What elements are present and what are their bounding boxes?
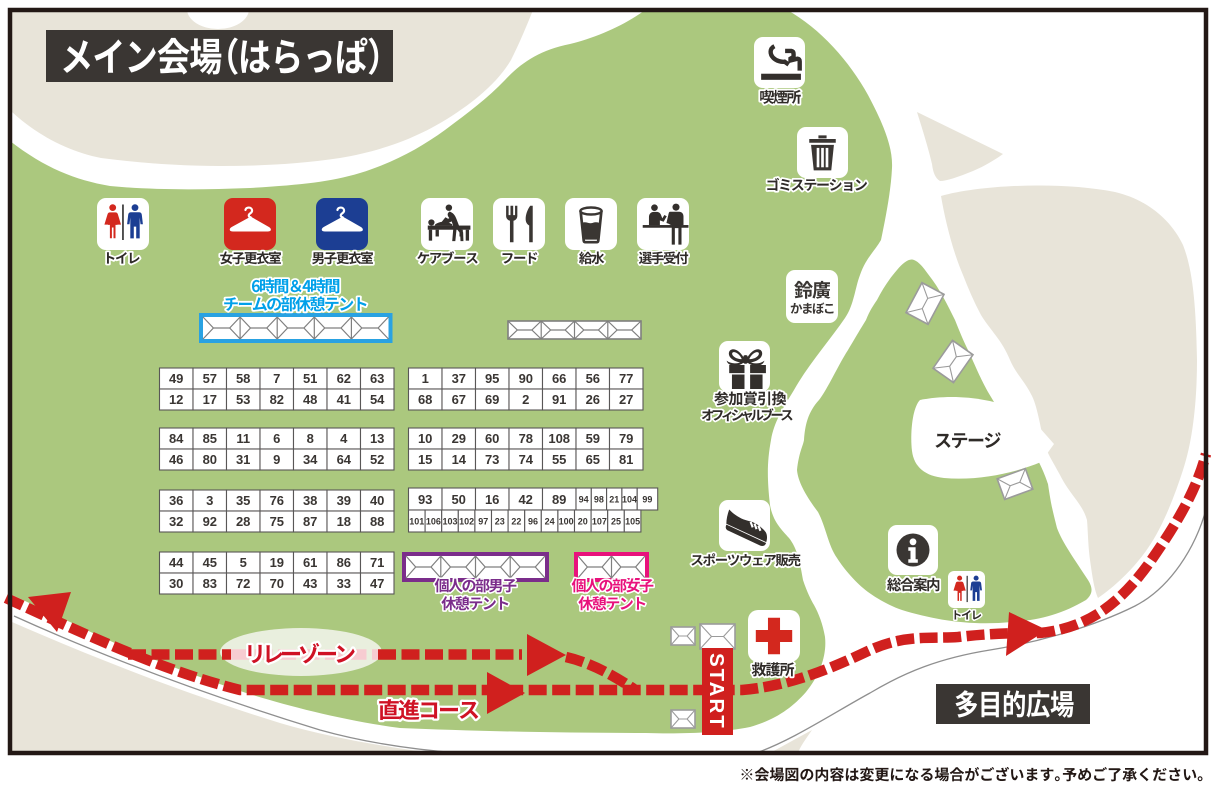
svg-text:64: 64 [337,452,352,467]
svg-text:68: 68 [418,392,432,407]
svg-text:57: 57 [203,371,217,386]
svg-text:42: 42 [518,492,532,507]
svg-text:54: 54 [370,392,385,407]
svg-text:62: 62 [337,371,351,386]
svg-text:38: 38 [303,493,317,508]
svg-text:9: 9 [273,452,280,467]
svg-text:76: 76 [270,493,284,508]
svg-text:8: 8 [307,431,314,446]
svg-text:58: 58 [236,371,250,386]
svg-text:79: 79 [619,431,633,446]
svg-text:96: 96 [528,517,538,527]
svg-text:56: 56 [586,371,600,386]
svg-text:52: 52 [370,452,384,467]
svg-text:72: 72 [236,576,250,591]
svg-text:35: 35 [236,493,250,508]
svg-text:85: 85 [203,431,217,446]
svg-text:6: 6 [273,431,280,446]
svg-text:20: 20 [578,517,588,527]
svg-text:100: 100 [559,517,574,527]
svg-text:14: 14 [452,452,467,467]
svg-text:84: 84 [169,431,184,446]
svg-text:18: 18 [337,514,351,529]
svg-text:83: 83 [203,576,217,591]
svg-text:89: 89 [552,492,566,507]
svg-text:36: 36 [169,493,183,508]
svg-text:4: 4 [340,431,348,446]
svg-text:105: 105 [625,517,640,527]
svg-text:25: 25 [611,517,621,527]
svg-text:73: 73 [485,452,499,467]
svg-text:82: 82 [270,392,284,407]
svg-text:17: 17 [203,392,217,407]
svg-text:29: 29 [452,431,466,446]
svg-text:46: 46 [169,452,183,467]
svg-text:28: 28 [236,514,250,529]
svg-text:98: 98 [594,495,604,505]
svg-text:32: 32 [169,514,183,529]
svg-text:102: 102 [459,517,474,527]
svg-text:5: 5 [240,555,247,570]
svg-text:87: 87 [303,514,317,529]
svg-text:23: 23 [495,517,505,527]
svg-text:53: 53 [236,392,250,407]
svg-text:69: 69 [485,392,499,407]
svg-text:7: 7 [273,371,280,386]
svg-text:107: 107 [592,517,607,527]
svg-text:24: 24 [545,517,555,527]
svg-text:65: 65 [586,452,600,467]
svg-text:78: 78 [519,431,533,446]
svg-text:86: 86 [337,555,351,570]
svg-text:77: 77 [619,371,633,386]
svg-text:44: 44 [169,555,184,570]
svg-text:104: 104 [622,495,637,505]
svg-text:97: 97 [478,517,488,527]
svg-text:13: 13 [370,431,384,446]
svg-text:70: 70 [270,576,284,591]
svg-text:71: 71 [370,555,384,570]
svg-text:59: 59 [586,431,600,446]
svg-text:11: 11 [236,431,250,446]
svg-text:3: 3 [206,493,213,508]
svg-text:63: 63 [370,371,384,386]
svg-text:106: 106 [426,517,441,527]
svg-text:101: 101 [409,517,424,527]
svg-text:108: 108 [548,431,570,446]
svg-text:START: START [705,653,728,730]
svg-text:67: 67 [452,392,466,407]
svg-text:75: 75 [270,514,284,529]
svg-text:16: 16 [485,492,499,507]
svg-text:34: 34 [303,452,318,467]
svg-text:95: 95 [485,371,499,386]
svg-text:2: 2 [522,392,529,407]
svg-text:43: 43 [303,576,317,591]
svg-text:81: 81 [619,452,633,467]
svg-text:66: 66 [552,371,566,386]
svg-text:27: 27 [619,392,633,407]
svg-text:88: 88 [370,514,384,529]
svg-text:30: 30 [169,576,183,591]
svg-text:90: 90 [519,371,533,386]
svg-text:49: 49 [169,371,183,386]
svg-text:94: 94 [579,495,589,505]
svg-text:21: 21 [609,495,619,505]
svg-text:33: 33 [337,576,351,591]
svg-text:19: 19 [270,555,284,570]
svg-text:60: 60 [485,431,499,446]
svg-text:12: 12 [169,392,183,407]
svg-text:91: 91 [552,392,566,407]
svg-text:26: 26 [586,392,600,407]
svg-text:50: 50 [451,492,465,507]
svg-text:41: 41 [337,392,351,407]
svg-text:48: 48 [303,392,317,407]
svg-text:103: 103 [442,517,457,527]
svg-text:51: 51 [303,371,317,386]
svg-text:31: 31 [236,452,250,467]
svg-text:93: 93 [418,492,432,507]
svg-text:92: 92 [203,514,217,529]
svg-text:37: 37 [452,371,466,386]
svg-text:74: 74 [519,452,534,467]
svg-text:40: 40 [370,493,384,508]
svg-text:10: 10 [418,431,432,446]
svg-text:61: 61 [303,555,317,570]
svg-text:22: 22 [511,517,521,527]
svg-text:55: 55 [552,452,566,467]
svg-text:47: 47 [370,576,384,591]
svg-text:80: 80 [203,452,217,467]
svg-text:15: 15 [418,452,432,467]
svg-text:39: 39 [337,493,351,508]
svg-text:1: 1 [422,371,429,386]
svg-text:99: 99 [642,495,652,505]
svg-text:45: 45 [203,555,217,570]
